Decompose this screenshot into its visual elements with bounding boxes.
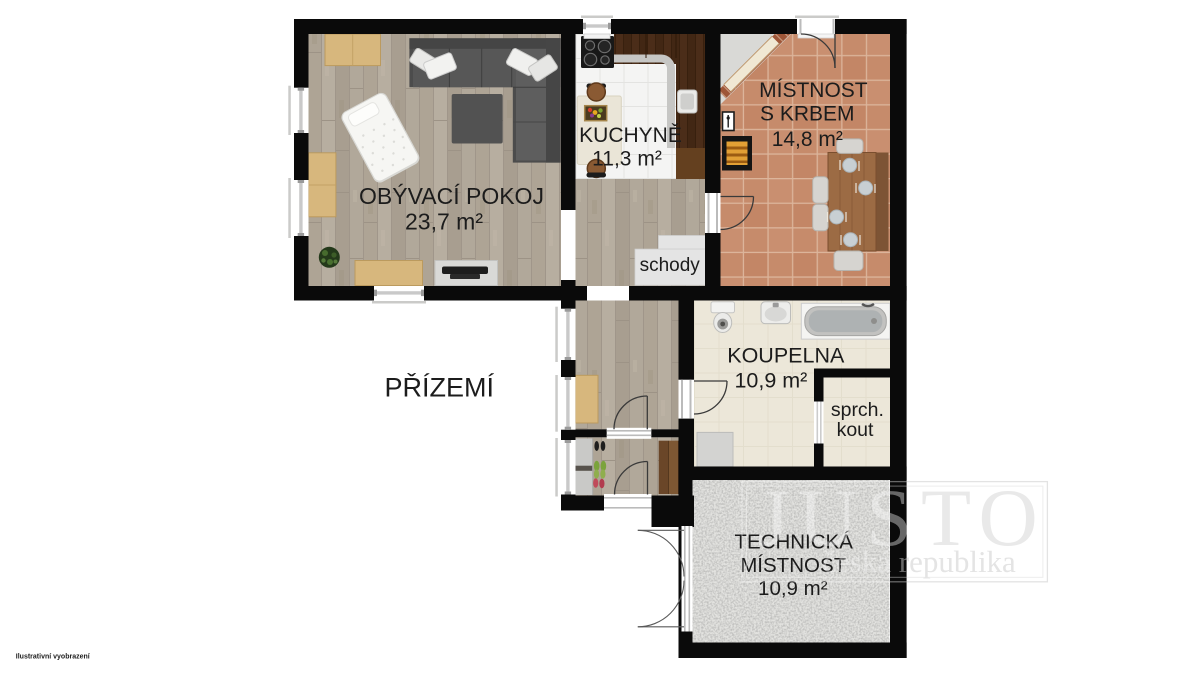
svg-text:sprch.: sprch.: [831, 399, 884, 421]
svg-text:10,9 m²: 10,9 m²: [758, 577, 828, 600]
svg-text:KUCHYNĚ: KUCHYNĚ: [579, 124, 682, 147]
svg-text:S KRBEM: S KRBEM: [760, 103, 855, 126]
svg-text:PŘÍZEMÍ: PŘÍZEMÍ: [385, 371, 495, 402]
svg-text:kout: kout: [837, 419, 874, 441]
svg-text:14,8 m²: 14,8 m²: [772, 128, 843, 151]
svg-text:Ilustrativní vyobrazení: Ilustrativní vyobrazení: [16, 653, 91, 660]
svg-text:KOUPELNA: KOUPELNA: [727, 344, 845, 368]
svg-text:11,3 m²: 11,3 m²: [592, 148, 662, 171]
svg-text:schody: schody: [640, 255, 701, 276]
svg-text:10,9 m²: 10,9 m²: [734, 369, 807, 393]
svg-text:OBÝVACÍ POKOJ: OBÝVACÍ POKOJ: [359, 183, 544, 209]
svg-text:23,7 m²: 23,7 m²: [405, 209, 483, 235]
svg-text:MÍSTNOST: MÍSTNOST: [759, 79, 868, 102]
